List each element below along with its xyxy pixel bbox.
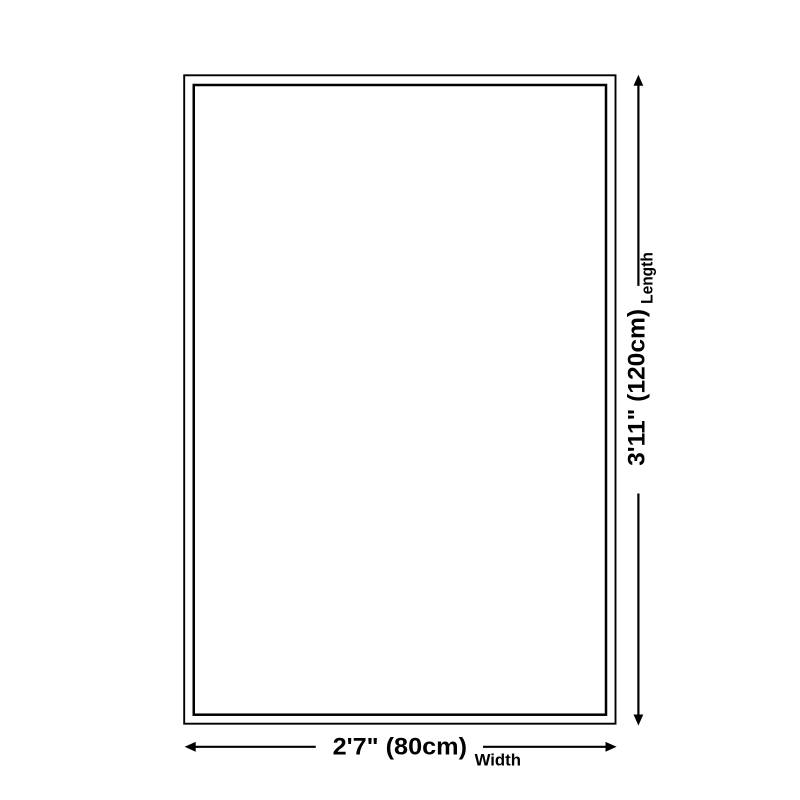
svg-text:2'7" (80cm): 2'7" (80cm) — [333, 734, 467, 761]
svg-text:3'11" (120cm): 3'11" (120cm) — [624, 309, 651, 466]
svg-text:Width: Width — [475, 750, 521, 769]
svg-text:Length: Length — [638, 252, 657, 304]
